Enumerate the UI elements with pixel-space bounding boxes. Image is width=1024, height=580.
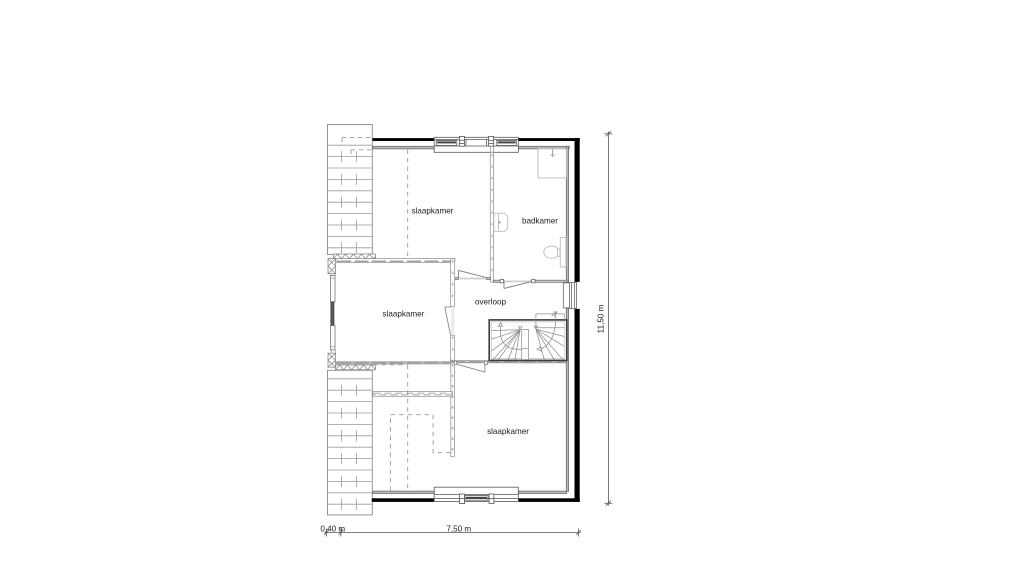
svg-text:7,50 m: 7,50 m: [446, 524, 471, 533]
svg-text:0,40 m: 0,40 m: [320, 524, 345, 533]
svg-text:overloop: overloop: [475, 298, 507, 307]
svg-text:11,50 m: 11,50 m: [597, 304, 606, 333]
svg-text:slaapkamer: slaapkamer: [382, 309, 424, 318]
svg-text:slaapkamer: slaapkamer: [487, 427, 529, 436]
svg-text:slaapkamer: slaapkamer: [412, 206, 454, 215]
svg-text:badkamer: badkamer: [522, 217, 558, 226]
